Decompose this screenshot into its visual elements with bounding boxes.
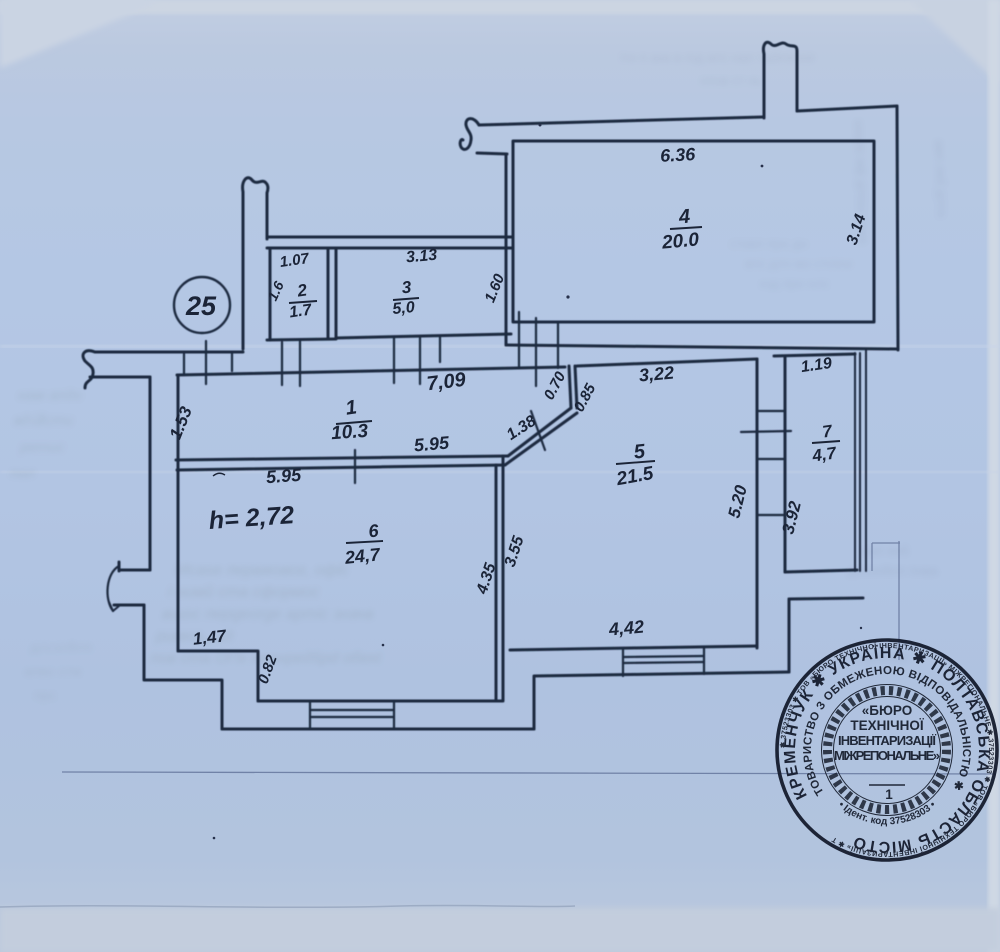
svg-text:ретис: ретис: [19, 439, 65, 456]
svg-text:25: 25: [185, 291, 217, 321]
svg-text:1.7: 1.7: [288, 301, 313, 321]
svg-text:5,0: 5,0: [392, 299, 416, 318]
svg-text:6.36: 6.36: [660, 144, 697, 166]
svg-text:ІНВЕНТАРИЗАЦІЇ: ІНВЕНТАРИЗАЦІЇ: [838, 733, 936, 748]
svg-text:опов ст нь: опов ст нь: [700, 73, 762, 88]
svg-text:вшос перgeorge артіс значв: вшос перgeorge артіс значв: [162, 606, 374, 623]
svg-text:длconfirm пова: длconfirm пова: [848, 563, 938, 578]
svg-text:20.0: 20.0: [660, 229, 700, 253]
svg-text:пал: пал: [10, 465, 35, 482]
svg-text:5.95: 5.95: [413, 432, 451, 455]
svg-text:5.95: 5.95: [265, 465, 302, 487]
svg-text:3.13: 3.13: [405, 247, 438, 267]
svg-text:1,47: 1,47: [192, 626, 228, 649]
svg-text:іти п анк в год мтс нап тadmin: іти п анк в год мтс нап тadministr: [620, 50, 816, 65]
svg-text:длconfirm: длconfirm: [30, 639, 92, 655]
svg-text:h= 2,72: h= 2,72: [208, 501, 295, 535]
svg-text:вдほсти: вдほсти: [14, 412, 74, 429]
svg-text:ставл про дн: ставл про дн: [730, 236, 807, 251]
svg-text:3,22: 3,22: [638, 363, 675, 386]
svg-text:впс длч мо стview: впс длч мо стview: [745, 256, 853, 271]
svg-text:4,42: 4,42: [607, 617, 645, 640]
svg-text:4: 4: [677, 206, 691, 229]
svg-text:МІЖРЕГІОНАЛЬНЕ»: МІЖРЕГІОНАЛЬНЕ»: [834, 748, 940, 763]
svg-text:Мcase первжовог, офlс: Мcase первжовог, офlс: [175, 562, 349, 579]
svg-text:1: 1: [885, 787, 893, 802]
svg-text:«БЮРО: «БЮРО: [862, 703, 912, 718]
svg-text:нап еяб: нап еяб: [862, 543, 909, 558]
svg-text:24,7: 24,7: [343, 544, 382, 568]
svg-text:нам апдо: нам апдо: [18, 387, 82, 404]
svg-text:апво стм: апво стм: [24, 663, 81, 679]
svg-text:ТЕХНІЧНОЇ: ТЕХНІЧНОЇ: [850, 718, 924, 733]
svg-text:і нимй ста сформос: і нимй ста сформос: [168, 584, 320, 601]
svg-text:авп лкб длта: авп лкб длта: [932, 140, 950, 219]
svg-text:прс: прс: [34, 687, 56, 703]
svg-text:4,7: 4,7: [810, 443, 839, 465]
svg-text:кзд про нлс: кзд про нлс: [760, 276, 830, 291]
